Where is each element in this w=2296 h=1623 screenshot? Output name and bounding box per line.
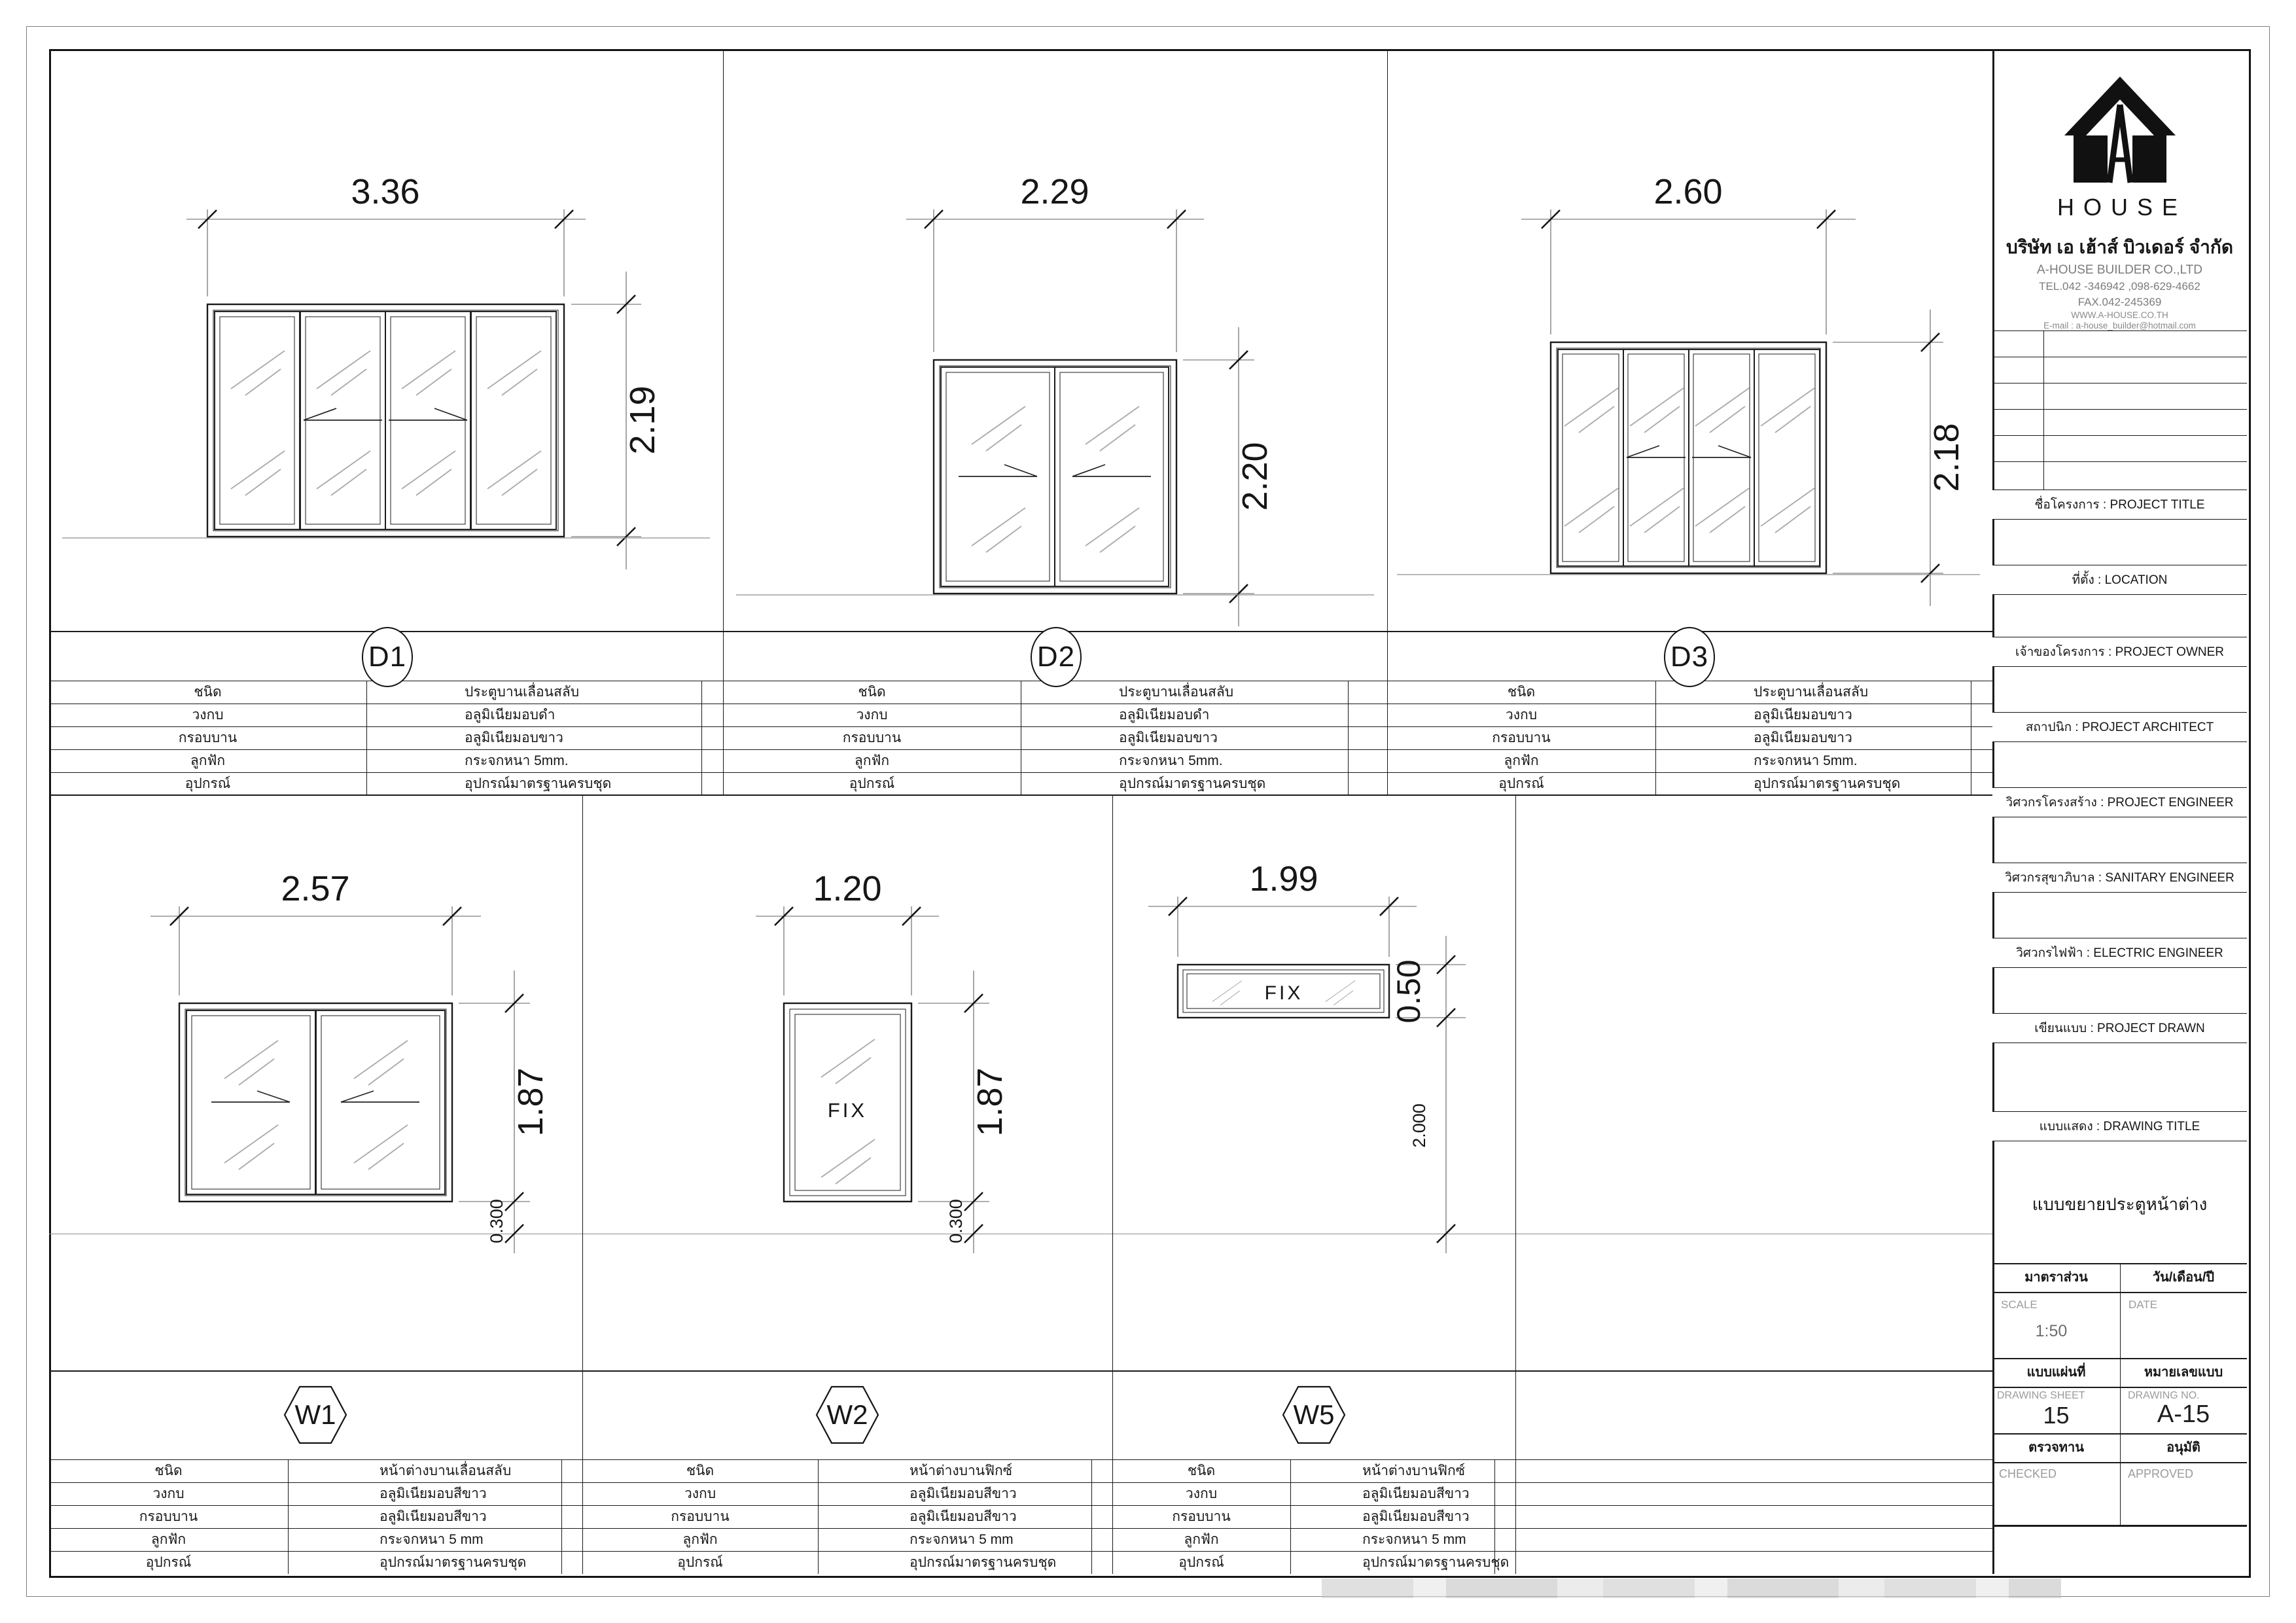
company-logo-icon — [2064, 73, 2176, 186]
spec-value: กระจกหนา 5 mm — [380, 1528, 484, 1551]
field-drawing-title-header: แบบแสดง : DRAWING TITLE — [1992, 1111, 2247, 1141]
w5-height-dim: 0.50 — [1390, 959, 1427, 1023]
w2-elevation: FIX 1.20 1.87 0.300 — [582, 795, 1112, 1371]
spec-value: อลูมิเนียมอบขาว — [1754, 704, 1852, 726]
checked-header: ตรวจทาน — [1992, 1433, 2120, 1458]
d1-elevation: 3.36 2.19 — [49, 49, 723, 632]
w2-dim-ticks — [775, 907, 983, 1243]
spec-label: ลูกฟัก — [1387, 749, 1655, 772]
spec-value: หน้าต่างบานฟิกซ์ — [1362, 1459, 1465, 1482]
spec-label: ลูกฟัก — [1112, 1528, 1290, 1551]
titleblock-line — [1992, 1525, 2247, 1527]
d3-width-dim: 2.60 — [1653, 172, 1722, 211]
field-project-owner: เจ้าของโครงการ : PROJECT OWNER — [1992, 637, 2247, 667]
w2-fix-label: FIX — [828, 1099, 867, 1122]
spec-label: อุปกรณ์ — [49, 772, 366, 795]
spec-value: กระจกหนา 5mm. — [1119, 749, 1223, 772]
spec-label: กรอบบาน — [49, 1505, 288, 1528]
scale-label: SCALE — [2001, 1298, 2038, 1311]
spec-label: วงกบ — [1387, 704, 1655, 726]
d2-height-dim: 2.20 — [1235, 442, 1275, 510]
spec-value: อลูมิเนียมอบสีขาว — [910, 1505, 1017, 1528]
w2-label: W2 — [815, 1385, 880, 1445]
w5-label: W5 — [1281, 1385, 1347, 1445]
d1-label: D1 — [368, 641, 406, 673]
w1-height-dim: 1.87 — [511, 1067, 550, 1136]
d1-width-dim: 3.36 — [351, 172, 419, 211]
w5-fix-label: FIX — [1265, 982, 1303, 1004]
spec-label: กรอบบาน — [723, 726, 1021, 749]
w2-width-dim: 1.20 — [813, 869, 881, 908]
w2-label-hexagon: W2 — [815, 1385, 880, 1445]
d1-label-bubble: D1 — [362, 627, 413, 687]
w1-dim-ticks — [170, 907, 523, 1243]
spec-value: อุปกรณ์มาตรฐานครบชุด — [1119, 772, 1265, 795]
w1-elevation: 2.57 1.87 0.300 — [49, 795, 582, 1371]
table-divider — [701, 681, 702, 795]
spec-label: อุปกรณ์ — [1387, 772, 1655, 795]
spec-label: ลูกฟัก — [582, 1528, 818, 1551]
spec-label: ลูกฟัก — [723, 749, 1021, 772]
spec-label: ชนิด — [49, 681, 366, 704]
titleblock-line — [2043, 330, 2044, 490]
spec-label: ชนิด — [1112, 1459, 1290, 1482]
spec-value: อุปกรณ์มาตรฐานครบชุด — [465, 772, 611, 795]
d1-height-dim: 2.19 — [623, 385, 662, 454]
spec-value: อุปกรณ์มาตรฐานครบชุด — [1362, 1551, 1509, 1574]
spec-value: อลูมิเนียมอบขาว — [1119, 726, 1218, 749]
checked-label: CHECKED — [1999, 1467, 2057, 1481]
field-location: ที่ตั้ง : LOCATION — [1992, 565, 2247, 595]
spec-label: อุปกรณ์ — [49, 1551, 288, 1574]
field-electric-engineer: วิศวกรไฟฟ้า : ELECTRIC ENGINEER — [1992, 938, 2247, 968]
d2-label: D2 — [1037, 641, 1075, 673]
sheet-value: 15 — [1992, 1402, 2120, 1429]
number-value: A-15 — [2120, 1400, 2247, 1429]
spec-value: อลูมิเนียมอบดำ — [465, 704, 555, 726]
field-sanitary-engineer: วิศวกรสุขาภิบาล : SANITARY ENGINEER — [1992, 863, 2247, 893]
sheet-header: แบบแผ่นที่ — [1992, 1358, 2120, 1383]
spec-value: ประตูบานเลื่อนสลับ — [1119, 681, 1233, 704]
w1-label-hexagon: W1 — [283, 1385, 348, 1445]
spec-label: กรอบบาน — [1387, 726, 1655, 749]
d2-glass-symbols — [972, 406, 1139, 552]
sheet-label: DRAWING SHEET — [1997, 1390, 2085, 1402]
field-project-title: ชื่อโครงการ : PROJECT TITLE — [1992, 490, 2247, 520]
spec-label: วงกบ — [49, 704, 366, 726]
column-divider — [1515, 795, 1516, 1574]
spec-label: กรอบบาน — [49, 726, 366, 749]
spec-value: อลูมิเนียมอบขาว — [465, 726, 563, 749]
date-label: DATE — [2128, 1298, 2157, 1311]
approved-header: อนุมัติ — [2120, 1433, 2247, 1458]
spec-value: กระจกหนา 5 mm — [1362, 1528, 1466, 1551]
spec-value: หน้าต่างบานเลื่อนสลับ — [380, 1459, 511, 1482]
titleblock-line — [1992, 357, 2247, 357]
company-name-en: A-HOUSE BUILDER CO.,LTD — [1992, 263, 2247, 277]
d3-height-dim: 2.18 — [1927, 423, 1966, 491]
spec-value: อลูมิเนียมอบสีขาว — [380, 1505, 487, 1528]
w5-width-dim: 1.99 — [1249, 859, 1318, 899]
spec-label: ชนิด — [49, 1459, 288, 1482]
field-project-architect: สถาปนิก : PROJECT ARCHITECT — [1992, 712, 2247, 742]
spec-label: ลูกฟัก — [49, 749, 366, 772]
titleblock-line — [1992, 330, 2247, 331]
scan-watermark — [1322, 1578, 2061, 1598]
d3-door-frame — [1551, 342, 1826, 573]
d3-glass-symbols — [1564, 388, 1814, 533]
date-header: วัน/เดือน/ปี — [2120, 1263, 2247, 1288]
spec-value: อลูมิเนียมอบสีขาว — [380, 1482, 487, 1505]
d2-width-dim: 2.29 — [1020, 172, 1089, 211]
spec-value: อุปกรณ์มาตรฐานครบชุด — [1754, 772, 1900, 795]
table-divider — [366, 681, 367, 795]
spec-label: อุปกรณ์ — [1112, 1551, 1290, 1574]
w1-sill-dim: 0.300 — [487, 1199, 506, 1243]
table-divider — [288, 1459, 289, 1574]
drawing-sheet: 3.36 2.19 2.29 2.20 — [0, 0, 2296, 1623]
table-divider — [818, 1459, 819, 1574]
spec-label: ชนิด — [723, 681, 1021, 704]
scale-value: 1:50 — [1992, 1322, 2110, 1341]
w2-height-dim: 1.87 — [970, 1067, 1010, 1136]
spec-label: กรอบบาน — [1112, 1505, 1290, 1528]
spec-value: อุปกรณ์มาตรฐานครบชุด — [380, 1551, 526, 1574]
d3-label-bubble: D3 — [1664, 627, 1715, 687]
spec-label: อุปกรณ์ — [582, 1551, 818, 1574]
spec-value: อลูมิเนียมอบสีขาว — [910, 1482, 1017, 1505]
w5-elevation: FIX 1.99 0.50 2.000 — [1112, 795, 1515, 1371]
d3-dimension-lines — [1521, 209, 1943, 606]
spec-label: วงกบ — [49, 1482, 288, 1505]
number-header: หมายเลขแบบ — [2120, 1358, 2247, 1383]
spec-value: ประตูบานเลื่อนสลับ — [1754, 681, 1868, 704]
d2-dimension-lines — [906, 209, 1254, 626]
spec-value: อุปกรณ์มาตรฐานครบชุด — [910, 1551, 1056, 1574]
field-project-drawn: เขียนแบบ : PROJECT DRAWN — [1992, 1013, 2247, 1043]
company-tel: TEL.042 -346942 ,098-629-4662 — [1992, 280, 2247, 293]
spec-label: วงกบ — [1112, 1482, 1290, 1505]
spec-value: อลูมิเนียมอบสีขาว — [1362, 1482, 1470, 1505]
spec-label: ชนิด — [582, 1459, 818, 1482]
d2-dim-ticks — [925, 210, 1248, 603]
spec-label: กรอบบาน — [582, 1505, 818, 1528]
spec-value: ประตูบานเลื่อนสลับ — [465, 681, 579, 704]
spec-value: กระจกหนา 5mm. — [1754, 749, 1858, 772]
spec-value: กระจกหนา 5mm. — [465, 749, 569, 772]
company-website: WWW.A-HOUSE.CO.TH — [1992, 310, 2247, 320]
table-divider — [1091, 1459, 1092, 1574]
spec-label: ชนิด — [1387, 681, 1655, 704]
spec-value: อลูมิเนียมอบสีขาว — [1362, 1505, 1470, 1528]
grid-line — [49, 1482, 1992, 1483]
w5-dimension-lines — [1148, 897, 1466, 1253]
w2-sill-dim: 0.300 — [946, 1199, 966, 1243]
spec-label: วงกบ — [723, 704, 1021, 726]
spec-label: ลูกฟัก — [49, 1528, 288, 1551]
titleblock-line — [1992, 435, 2247, 436]
w1-width-dim: 2.57 — [281, 869, 349, 908]
d2-elevation: 2.29 2.20 — [723, 49, 1387, 632]
field-project-engineer: วิศวกรโครงสร้าง : PROJECT ENGINEER — [1992, 787, 2247, 817]
grid-line — [49, 1505, 1992, 1506]
w5-label-hexagon: W5 — [1281, 1385, 1347, 1445]
company-name-th: บริษัท เอ เฮ้าส์ บิวเดอร์ จำกัด — [1992, 233, 2247, 262]
drawing-title-text: แบบขยายประตูหน้าต่าง — [1992, 1191, 2247, 1218]
table-divider — [561, 1459, 562, 1574]
d3-label: D3 — [1670, 641, 1708, 673]
spec-value: อลูมิเนียมอบขาว — [1754, 726, 1852, 749]
w5-sill-dim: 2.000 — [1409, 1103, 1429, 1148]
spec-value: หน้าต่างบานฟิกซ์ — [910, 1459, 1012, 1482]
table-divider — [1290, 1459, 1291, 1574]
table-divider — [1971, 681, 1971, 795]
table-divider — [1655, 681, 1656, 795]
spec-label: วงกบ — [582, 1482, 818, 1505]
titleblock-line — [1992, 461, 2247, 462]
approved-label: APPROVED — [2128, 1467, 2193, 1481]
titleblock-line — [1992, 383, 2247, 383]
d1-dimension-lines — [186, 209, 641, 569]
d3-dim-ticks — [1542, 210, 1939, 582]
table-divider — [1348, 681, 1349, 795]
table-divider — [1021, 681, 1021, 795]
d2-label-bubble: D2 — [1031, 627, 1082, 687]
grid-line — [49, 1528, 1992, 1529]
spec-label: อุปกรณ์ — [723, 772, 1021, 795]
spec-value: กระจกหนา 5 mm — [910, 1528, 1014, 1551]
w5-dim-ticks — [1169, 897, 1455, 1243]
d1-door-frame — [207, 304, 564, 537]
scale-header: มาตราส่วน — [1992, 1263, 2120, 1288]
company-fax: FAX.042-245369 — [1992, 296, 2247, 309]
company-email: E-mail : a-house_builder@hotmail.com — [1992, 321, 2247, 330]
spec-value: อลูมิเนียมอบดำ — [1119, 704, 1209, 726]
d1-glass-symbols — [231, 351, 541, 495]
d3-elevation: 2.60 2.18 — [1387, 49, 1990, 632]
grid-line — [49, 1459, 1992, 1460]
titleblock-line — [1992, 409, 2247, 410]
w1-label: W1 — [283, 1385, 348, 1445]
company-logo-word: HOUSE — [1992, 194, 2247, 221]
